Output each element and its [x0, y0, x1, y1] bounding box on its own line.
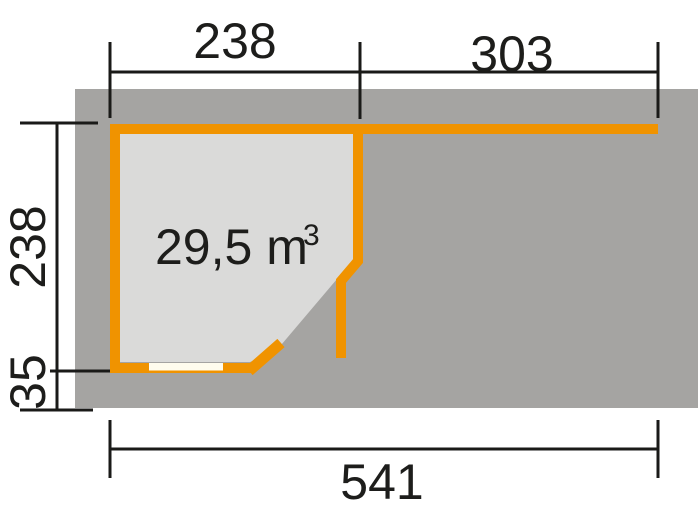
- window: [149, 363, 223, 371]
- dim-label-total-width: 541: [340, 454, 423, 510]
- volume-superscript: 3: [303, 219, 320, 252]
- volume-value: 29,5 m: [155, 219, 308, 275]
- dim-label-shed-depth: 238: [0, 205, 56, 288]
- floor-plan-canvas: 238 303 541 238 35 29,5 m 3: [0, 0, 700, 525]
- volume-annotation: 29,5 m 3: [155, 219, 320, 275]
- dim-label-shed-width: 238: [193, 13, 276, 69]
- dim-label-canopy-width: 303: [470, 26, 553, 82]
- floor-plan-diagram: 238 303 541 238 35 29,5 m 3: [0, 0, 700, 525]
- dim-label-roof-overhang: 35: [0, 354, 56, 410]
